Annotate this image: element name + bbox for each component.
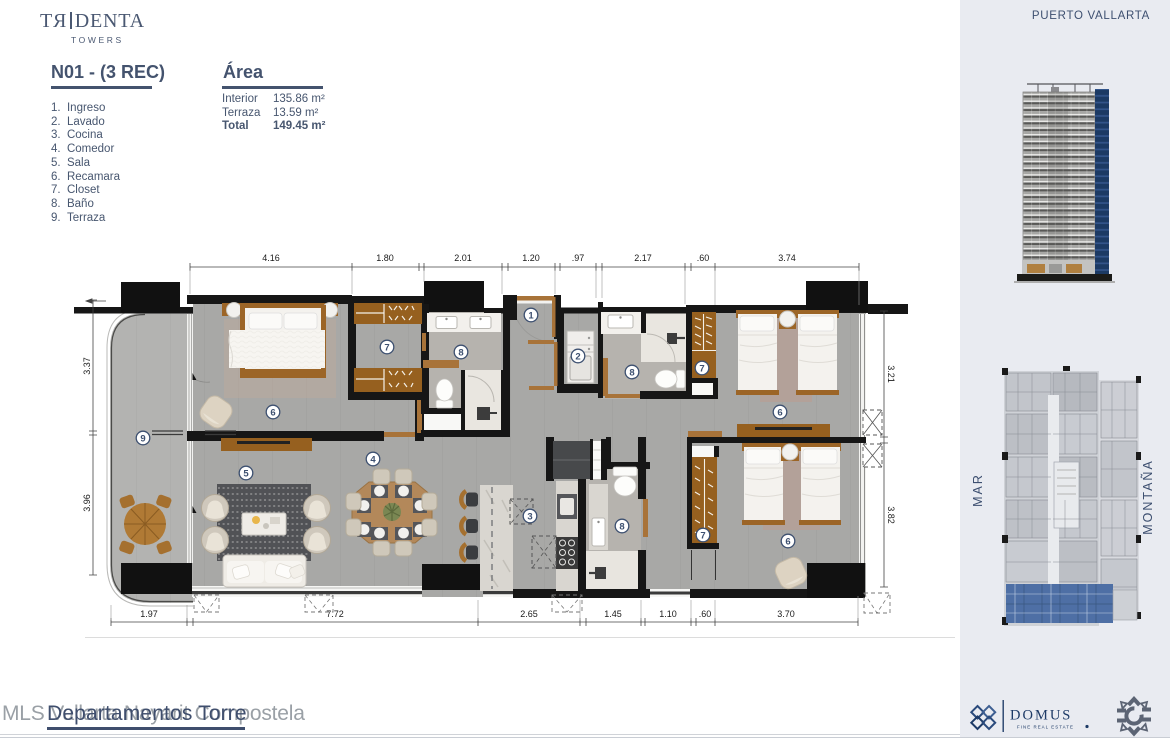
svg-text:3.74: 3.74	[778, 253, 796, 263]
svg-text:.60: .60	[697, 253, 710, 263]
svg-text:8: 8	[629, 367, 634, 378]
svg-text:3.37: 3.37	[82, 357, 92, 375]
svg-text:7: 7	[384, 342, 389, 353]
svg-text:1.80: 1.80	[376, 253, 394, 263]
svg-text:FINE REAL ESTATE: FINE REAL ESTATE	[1017, 725, 1074, 730]
svg-text:2: 2	[575, 351, 580, 362]
svg-text:3.82: 3.82	[886, 506, 896, 524]
svg-text:2.17: 2.17	[634, 253, 652, 263]
svg-text:1: 1	[528, 310, 534, 321]
svg-text:.97: .97	[572, 253, 585, 263]
svg-text:1.10: 1.10	[659, 609, 677, 619]
svg-text:9: 9	[140, 433, 145, 444]
svg-text:MONTAÑA: MONTAÑA	[1141, 459, 1155, 535]
svg-text:DOMUS: DOMUS	[1010, 708, 1072, 724]
svg-text:8: 8	[458, 347, 463, 358]
svg-text:MAR: MAR	[971, 473, 985, 507]
svg-text:7: 7	[700, 530, 705, 541]
svg-text:4: 4	[370, 454, 376, 465]
svg-text:1.97: 1.97	[140, 609, 158, 619]
svg-text:.60: .60	[699, 609, 712, 619]
svg-text:7.72: 7.72	[326, 609, 344, 619]
svg-text:6: 6	[270, 407, 275, 418]
svg-text:7: 7	[699, 363, 704, 374]
svg-text:4.16: 4.16	[262, 253, 280, 263]
svg-text:3: 3	[527, 511, 532, 522]
svg-text:2.01: 2.01	[454, 253, 472, 263]
svg-text:1.20: 1.20	[522, 253, 540, 263]
svg-text:2.65: 2.65	[520, 609, 538, 619]
svg-text:6: 6	[785, 536, 790, 547]
svg-text:3.96: 3.96	[82, 494, 92, 512]
svg-text:6: 6	[777, 407, 782, 418]
svg-text:8: 8	[619, 521, 624, 532]
svg-text:3.21: 3.21	[886, 365, 896, 383]
svg-text:3.70: 3.70	[777, 609, 795, 619]
svg-text:5: 5	[243, 468, 249, 479]
svg-text:1.45: 1.45	[604, 609, 622, 619]
